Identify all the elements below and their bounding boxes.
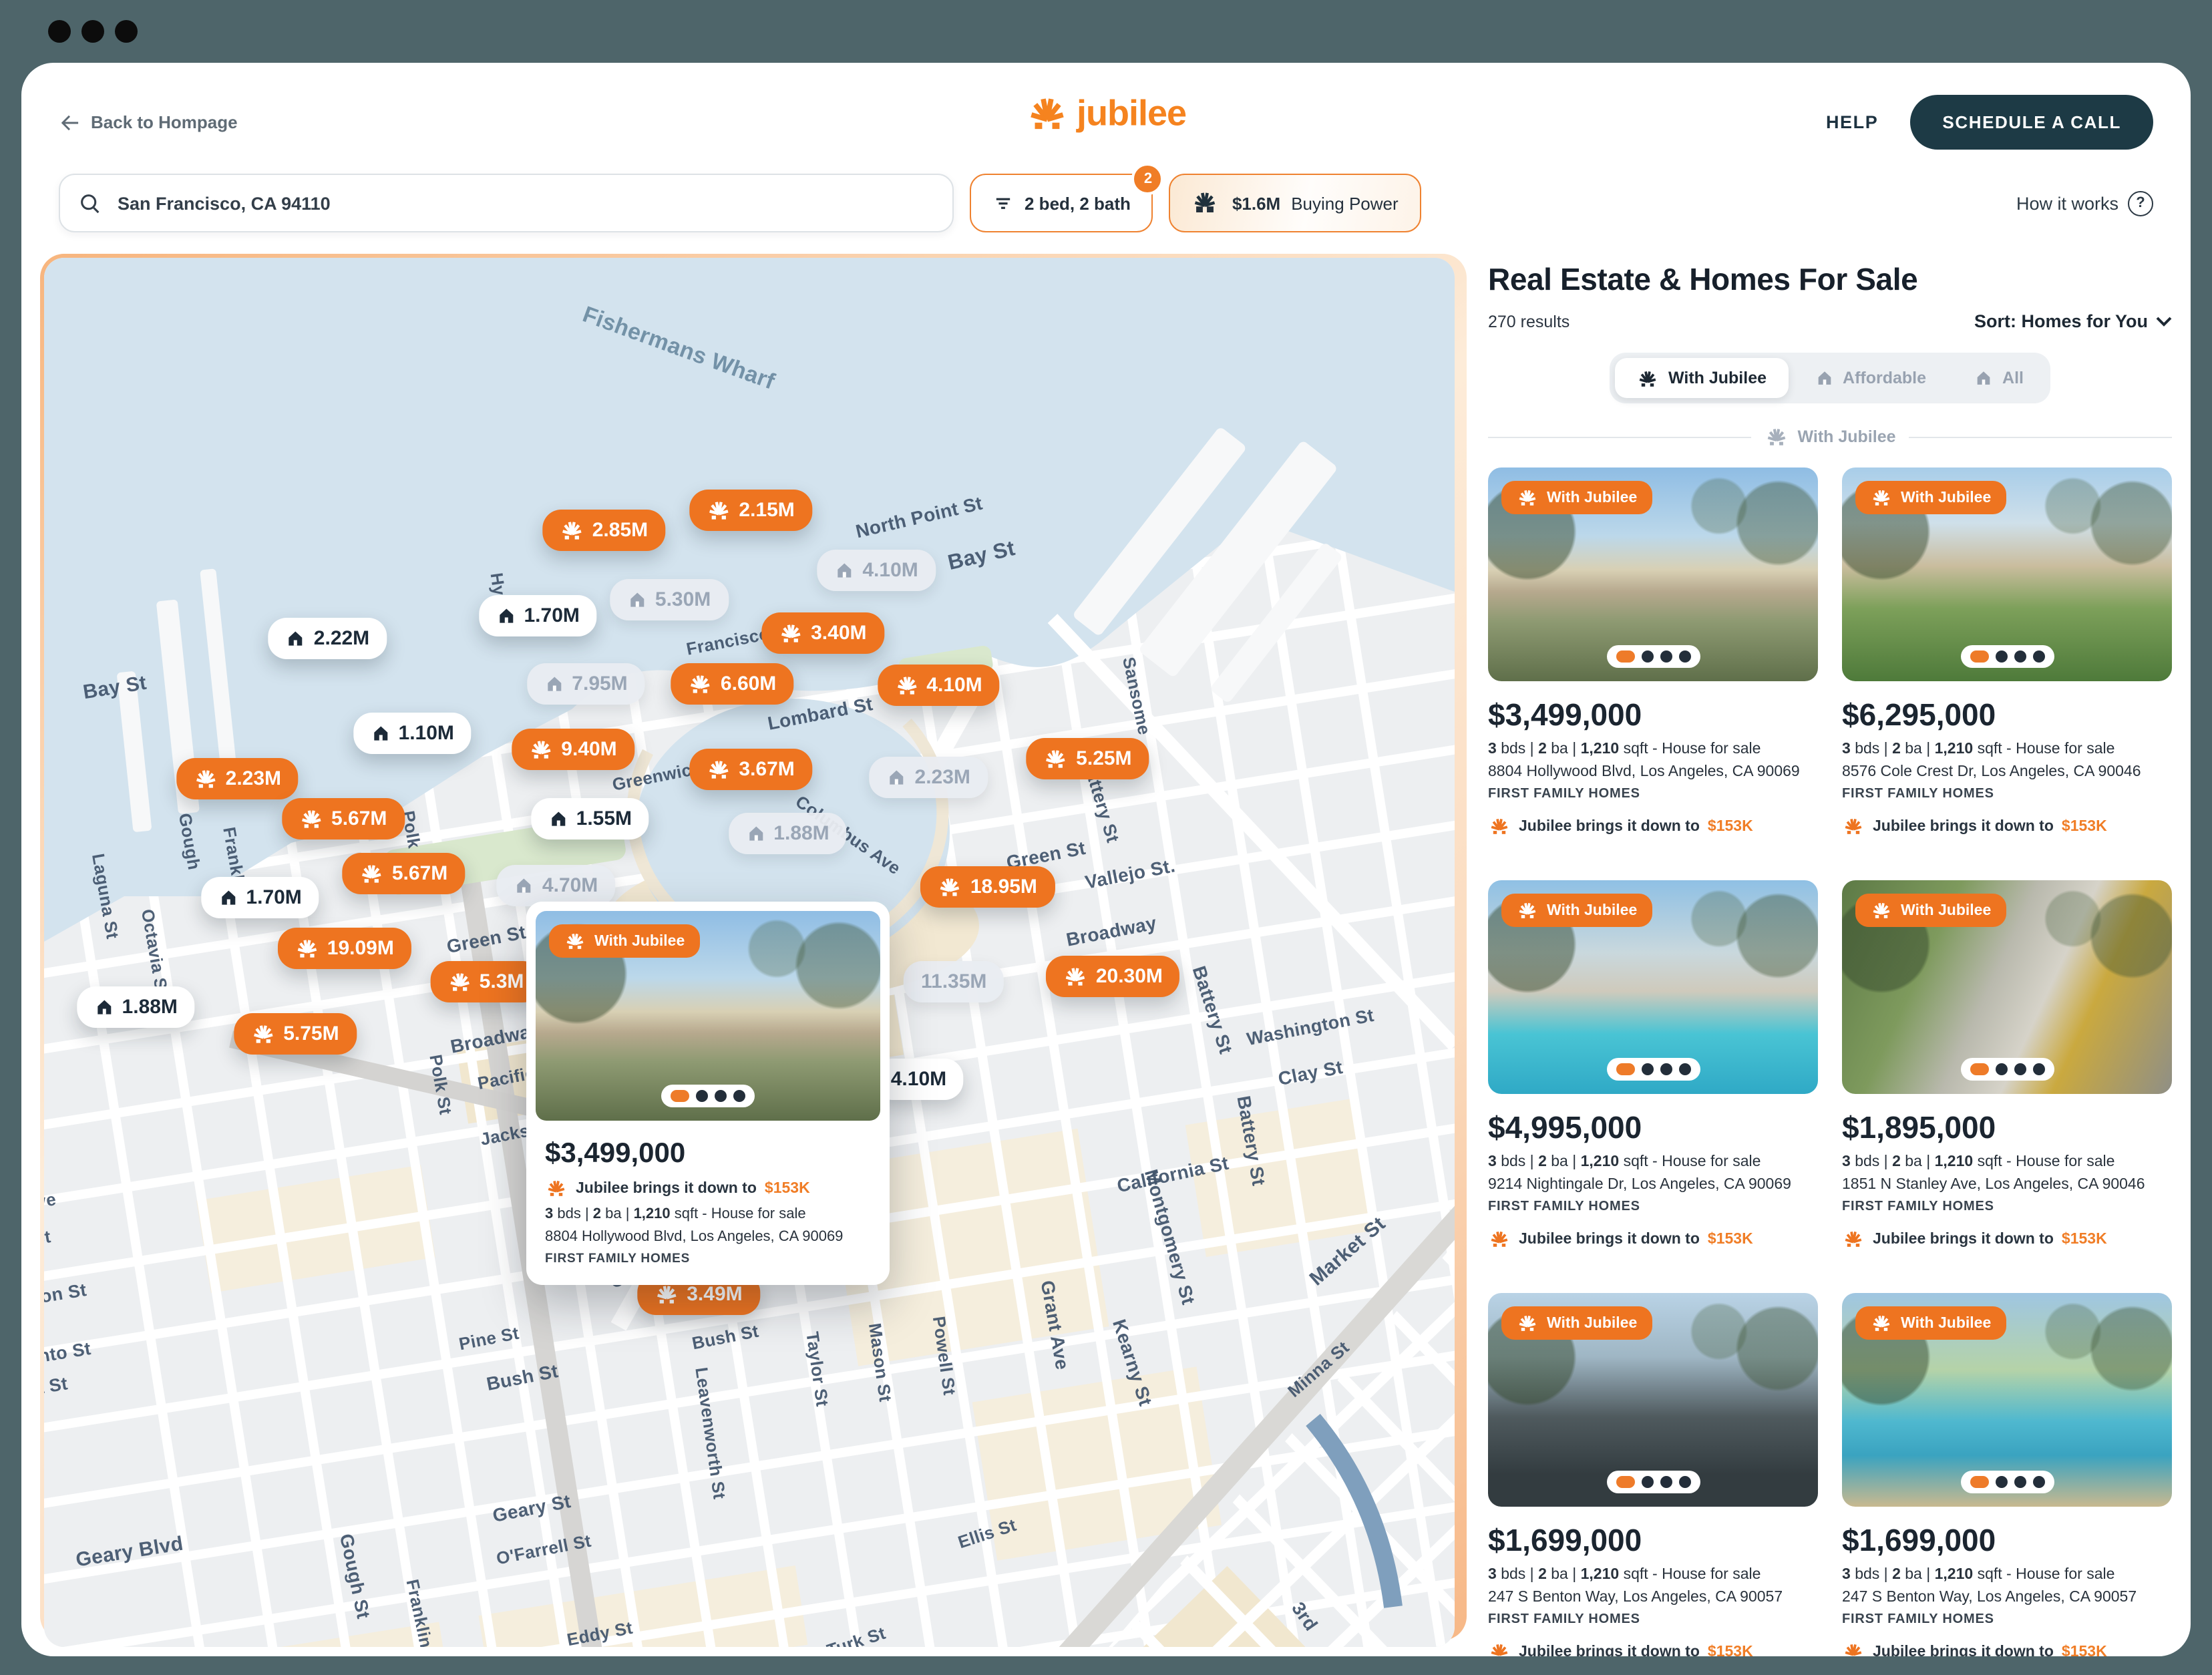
listing-photo[interactable]: With Jubilee [1488,880,1818,1094]
jubilee-icon [1765,427,1789,446]
pin-price-label: 7.95M [572,673,627,696]
filter-label: 2 bed, 2 bath [1025,193,1131,213]
listing-card[interactable]: With Jubilee $1,895,000 3 bds | 2 ba | 1… [1842,880,2172,1248]
back-label: Back to Hompage [91,112,238,132]
map-price-pin[interactable]: 4.10M [817,550,935,591]
jubilee-icon [1842,817,1865,835]
listing-photo[interactable]: With Jubilee [1488,1293,1818,1507]
house-icon [94,996,114,1016]
map-price-pin[interactable]: 2.23M [870,757,988,798]
map-price-pin[interactable]: 4.70M [497,865,615,906]
help-link[interactable]: HELP [1826,112,1878,132]
house-icon [544,675,564,695]
listing-price: $1,895,000 [1842,1110,2172,1146]
pin-price-label: 4.10M [926,675,982,697]
jubilee-icon [560,520,584,540]
jubilee-icon [1192,190,1219,216]
jubilee-icon [779,623,803,643]
results-panel: Real Estate & Homes For Sale 270 results… [1488,254,2172,1640]
page-title: Real Estate & Homes For Sale [1488,262,2172,298]
map-price-pin[interactable]: 1.88M [728,812,846,854]
pin-price-label: 5.3M [480,970,524,993]
buying-power-amount: $1.6M [1232,193,1280,213]
map-price-pin[interactable]: 19.09M [278,928,411,969]
map-price-pin[interactable]: 2.15M [689,490,811,532]
listing-price: $4,995,000 [1488,1110,1818,1146]
pin-price-label: 2.23M [226,767,281,790]
jubilee-icon [194,769,218,789]
pin-price-label: 3.40M [811,622,866,644]
with-jubilee-badge: With Jubilee [1855,894,2006,927]
jubilee-sunburst-icon [1026,96,1069,130]
jubilee-icon [1044,749,1068,769]
tab-all[interactable]: All [1953,358,2045,398]
window-chrome [0,0,2212,63]
schedule-call-button[interactable]: SCHEDULE A CALL [1910,95,2153,150]
jubilee-discount-line: Jubilee brings it down to$153K [1842,1643,2172,1656]
map-price-pin[interactable]: 5.67M [282,798,404,840]
listing-broker: FIRST FAMILY HOMES [1842,1199,2172,1214]
jubilee-icon [1870,902,1893,919]
jubilee-discount-line: Jubilee brings it down to$153K [1488,1230,1818,1248]
listing-address: 1851 N Stanley Ave, Los Angeles, CA 9004… [1842,1177,2172,1193]
back-to-homepage-link[interactable]: Back to Hompage [59,112,238,133]
pin-price-label: 1.88M [122,995,178,1018]
house-icon [1815,369,1833,387]
jubilee-icon [894,676,918,696]
jubilee-icon [707,501,731,521]
listing-photo[interactable]: With Jubilee [1842,1293,2172,1507]
house-icon [1974,369,1993,387]
discount-text: Jubilee brings it down to [576,1180,757,1196]
jubilee-icon [1842,1230,1865,1248]
jubilee-icon [1516,1314,1539,1332]
jubilee-icon [1636,369,1659,387]
listing-address: 247 S Benton Way, Los Angeles, CA 90057 [1488,1590,1818,1606]
listing-price: $1,699,000 [1842,1523,2172,1559]
pin-price-label: 4.70M [542,874,598,897]
house-icon [371,723,391,743]
house-icon [496,606,516,626]
jubilee-icon [1842,1643,1865,1656]
jubilee-icon [1488,817,1511,835]
jubilee-icon [564,932,586,950]
carousel-dots[interactable] [1606,645,1700,668]
listing-price: $1,699,000 [1488,1523,1818,1559]
tab-label: Affordable [1843,369,1926,387]
listing-broker: FIRST FAMILY HOMES [1488,1199,1818,1214]
listing-filter-tabs: With Jubilee Affordable All [1610,353,2050,403]
jubilee-discount-line: Jubilee brings it down to$153K [1488,1643,1818,1656]
pin-price-label: 1.70M [524,605,579,628]
house-icon [887,767,907,787]
listing-specs: 3 bds | 2 ba | 1,210 sqft - House for sa… [1842,1567,2172,1583]
listing-specs: 3 bds | 2 ba | 1,210 sqft - House for sa… [1488,1154,1818,1170]
jubilee-icon [1870,1314,1893,1332]
listing-price: $6,295,000 [1842,697,2172,733]
chevron-down-icon [2156,316,2172,327]
filter-count-badge: 2 [1132,163,1164,195]
house-icon [548,809,568,829]
pin-price-label: 11.35M [921,970,986,993]
question-mark-icon: ? [2128,190,2153,216]
logo-wordmark: jubilee [1077,92,1186,134]
house-icon [627,590,647,610]
jubilee-icon [1870,489,1893,506]
tab-label: All [2002,369,2024,387]
listing-address: 247 S Benton Way, Los Angeles, CA 90057 [1842,1590,2172,1606]
map-price-pin[interactable]: 9.40M [512,729,634,770]
map-price-pin[interactable]: 11.35M [904,961,1004,1002]
sort-label: Sort: Homes for You [1974,311,2148,331]
house-icon [514,876,534,896]
traffic-light-maximize[interactable] [115,20,138,43]
tab-affordable[interactable]: Affordable [1793,358,1948,398]
listing-photo[interactable]: With Jubilee [1488,468,1818,681]
search-input[interactable] [115,192,934,214]
jubilee-icon [1488,1230,1511,1248]
pin-price-label: 5.30M [655,588,711,611]
jubilee-discount-line: Jubilee brings it down to$153K [1488,817,1818,835]
pin-price-label: 9.40M [561,738,616,761]
listing-address: 9214 Nightingale Dr, Los Angeles, CA 900… [1488,1177,1818,1193]
discount-amount: $153K [765,1180,810,1196]
listing-grid: With Jubilee $3,499,000 3 bds | 2 ba | 1… [1488,468,2172,1656]
jubilee-discount-line: Jubilee brings it down to $153K [545,1179,871,1197]
pin-price-label: 6.60M [721,673,776,696]
arrow-left-icon [59,112,80,133]
carousel-dots[interactable] [1960,645,2054,668]
pin-price-label: 1.10M [399,721,454,744]
map-price-pin[interactable]: 3.67M [689,748,811,789]
house-icon [834,560,854,580]
how-it-works-label: How it works [2016,193,2118,213]
pin-price-label: 2.22M [314,627,369,650]
jubilee-icon [529,739,553,759]
with-jubilee-badge: With Jubilee [1855,1306,2006,1340]
listing-specs: 3 bds | 2 ba | 1,210 sqft - House for sa… [1842,1154,2172,1170]
pin-price-label: 18.95M [970,876,1037,898]
map-price-pin[interactable]: 1.70M [478,596,596,637]
map-listing-popup[interactable]: With Jubilee $3,499,000 Jubilee brings i… [526,902,890,1285]
filter-icon [992,192,1014,214]
map-price-pin[interactable]: 3.40M [761,612,884,654]
jubilee-icon [447,972,472,992]
map-price-pin[interactable]: 18.95M [921,866,1055,908]
listing-card[interactable]: With Jubilee $4,995,000 3 bds | 2 ba | 1… [1488,880,1818,1248]
results-meta: 270 results Sort: Homes for You [1488,311,2172,331]
listing-address: 8804 Hollywood Blvd, Los Angeles, CA 900… [1488,764,1818,780]
tab-label: With Jubilee [1668,369,1767,387]
pin-price-label: 19.09M [327,937,394,960]
results-count: 270 results [1488,312,1570,331]
listing-broker: FIRST FAMILY HOMES [1488,787,1818,801]
pin-price-label: 5.75M [283,1023,339,1046]
map-price-pin[interactable]: 5.75M [234,1014,356,1055]
map-price-pin[interactable]: 2.85M [543,510,665,551]
pin-price-label: 1.88M [773,821,829,844]
jubilee-icon [1516,489,1539,506]
map-price-pin[interactable]: 1.88M [77,986,195,1027]
with-jubilee-badge: With Jubilee [549,924,699,958]
with-jubilee-badge: With Jubilee [1501,1306,1652,1340]
map-price-pin[interactable]: 5.67M [343,852,465,894]
search-toolbar: 2 bed, 2 bath 2 $1.6M Buying Power How i… [21,160,2191,254]
house-icon [286,628,306,648]
with-jubilee-badge: With Jubilee [1501,481,1652,514]
badge-label: With Jubilee [594,933,685,949]
traffic-light-close[interactable] [48,20,71,43]
listing-address: 8576 Cole Crest Dr, Los Angeles, CA 9004… [1842,764,2172,780]
listing-card[interactable]: With Jubilee $1,699,000 3 bds | 2 ba | 1… [1842,1293,2172,1656]
pin-price-label: 5.67M [331,807,387,830]
map-price-pin[interactable]: 2.23M [176,758,299,799]
jubilee-icon [295,938,319,958]
pin-price-label: 2.85M [592,519,648,542]
location-search[interactable] [59,174,954,232]
buying-power-label: Buying Power [1291,193,1398,213]
popup-body: $3,499,000 Jubilee brings it down to $15… [526,1130,890,1285]
app-window: Back to Hompage jubilee HELP SCHEDULE A … [0,0,2212,1675]
jubilee-discount-line: Jubilee brings it down to$153K [1842,817,2172,835]
tab-with-jubilee[interactable]: With Jubilee [1615,358,1788,398]
jubilee-icon [251,1025,275,1045]
how-it-works-link[interactable]: How it works ? [2016,190,2153,216]
pin-price-label: 5.25M [1076,748,1131,771]
search-icon [79,192,102,214]
popup-price: $3,499,000 [545,1138,871,1170]
browser-window: Back to Hompage jubilee HELP SCHEDULE A … [21,63,2191,1656]
pin-price-label: 3.49M [687,1283,742,1306]
jubilee-icon [938,877,962,897]
pin-price-label: 2.23M [915,766,970,789]
pin-price-label: 1.55M [576,807,632,830]
header-actions: HELP SCHEDULE A CALL [1826,95,2153,150]
jubilee-icon [689,675,713,695]
listing-specs: 3 bds | 2 ba | 1,210 sqft - House for sa… [1842,741,2172,757]
carousel-dots[interactable] [1960,1058,2054,1081]
jubilee-icon [360,863,384,883]
map-price-pin[interactable]: 5.3M [430,961,542,1002]
traffic-light-minimize[interactable] [81,20,104,43]
buying-power-button[interactable]: $1.6M Buying Power [1169,174,1421,232]
jubilee-discount-line: Jubilee brings it down to$153K [1842,1230,2172,1248]
listing-photo[interactable]: With Jubilee [1842,880,2172,1094]
map-price-pin[interactable]: 7.95M [526,664,644,705]
map-canvas[interactable]: Fishermans WharfNorth Point StBay StBay … [44,258,1455,1647]
listing-specs: 3 bds | 2 ba | 1,210 sqft - House for sa… [1488,741,1818,757]
popup-photo[interactable]: With Jubilee [536,911,880,1121]
pin-price-label: 5.67M [392,862,447,884]
with-jubilee-badge: With Jubilee [1501,894,1652,927]
jubilee-icon [1064,966,1088,986]
jubilee-logo[interactable]: jubilee [1026,92,1186,134]
pin-price-label: 20.30M [1096,964,1163,987]
jubilee-icon [707,759,731,779]
map-price-pin[interactable]: 1.70M [200,878,319,919]
popup-broker: FIRST FAMILY HOMES [545,1252,871,1266]
map-price-pin[interactable]: 6.60M [671,664,793,705]
beds-baths-filter-button[interactable]: 2 bed, 2 bath 2 [970,174,1153,232]
popup-specs: 3 bds | 2 ba | 1,210 sqft - House for sa… [545,1206,871,1222]
map-price-pin[interactable]: 1.10M [353,712,472,753]
listing-broker: FIRST FAMILY HOMES [1842,1612,2172,1627]
listing-card[interactable]: With Jubilee $1,699,000 3 bds | 2 ba | 1… [1488,1293,1818,1656]
popup-address: 8804 Hollywood Blvd, Los Angeles, CA 900… [545,1229,871,1245]
map-price-pin[interactable]: 5.25M [1027,739,1149,780]
listing-broker: FIRST FAMILY HOMES [1842,787,2172,801]
carousel-dots[interactable] [661,1085,755,1107]
map-price-pin[interactable]: 1.55M [531,798,649,840]
pin-price-label: 2.15M [739,500,794,522]
house-icon [745,823,765,843]
main-content: Fishermans WharfNorth Point StBay StBay … [21,254,2191,1656]
with-jubilee-divider: With Jubilee [1488,427,2172,446]
listing-card[interactable]: With Jubilee $3,499,000 3 bds | 2 ba | 1… [1488,468,1818,835]
carousel-dots[interactable] [1960,1471,2054,1493]
with-jubilee-badge: With Jubilee [1855,481,2006,514]
sort-dropdown[interactable]: Sort: Homes for You [1974,311,2172,331]
listing-price: $3,499,000 [1488,697,1818,733]
jubilee-icon [1488,1643,1511,1656]
jubilee-icon [299,809,323,829]
listing-card[interactable]: With Jubilee $6,295,000 3 bds | 2 ba | 1… [1842,468,2172,835]
house-icon [218,888,238,908]
pin-price-label: 1.70M [246,887,301,910]
listing-photo[interactable]: With Jubilee [1842,468,2172,681]
pin-price-label: 3.67M [739,757,794,780]
jubilee-icon [545,1179,568,1197]
listing-specs: 3 bds | 2 ba | 1,210 sqft - House for sa… [1488,1567,1818,1583]
divider-label: With Jubilee [1798,427,1896,446]
carousel-dots[interactable] [1606,1471,1700,1493]
map-frame: Fishermans WharfNorth Point StBay StBay … [40,254,1467,1640]
listing-broker: FIRST FAMILY HOMES [1488,1612,1818,1627]
pin-price-label: 4.10M [862,559,918,582]
jubilee-icon [655,1284,679,1304]
map-price-pin[interactable]: 4.10M [877,665,999,707]
app-header: Back to Hompage jubilee HELP SCHEDULE A … [21,63,2191,160]
map-price-pin[interactable]: 5.30M [610,579,728,620]
carousel-dots[interactable] [1606,1058,1700,1081]
jubilee-icon [1516,902,1539,919]
map-price-pin[interactable]: 2.22M [268,618,387,659]
map-price-pin[interactable]: 20.30M [1047,955,1180,996]
pin-price-label: 4.10M [891,1067,946,1090]
